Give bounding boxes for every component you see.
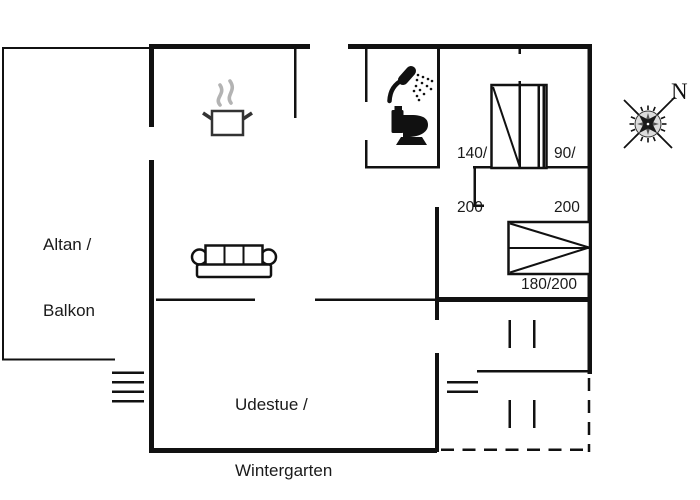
wall-left-upper xyxy=(149,44,154,127)
bathroom-wall-bottom xyxy=(365,166,440,169)
wall-top-right-segment xyxy=(348,44,592,49)
bathroom-wall-left-lower xyxy=(365,140,368,168)
double-bed-icon xyxy=(492,81,547,168)
wall-mid-horizontal xyxy=(435,297,590,302)
shower-icon xyxy=(390,71,434,101)
wall-mid-vertical-lower xyxy=(435,353,439,452)
wall-mid-vertical-upper xyxy=(435,207,439,320)
bathroom-wall-left-upper xyxy=(365,47,368,102)
bed-90-label: 90/ 200 xyxy=(554,109,580,253)
bed-140-label-line1: 140/ xyxy=(457,145,487,163)
terrace xyxy=(441,320,591,452)
floor-plan: N Altan / Balkon Udestue / Wintergarten … xyxy=(0,0,700,500)
balcony-left xyxy=(2,47,4,360)
balcony-top xyxy=(2,47,150,49)
entry-steps-icon xyxy=(112,372,144,403)
kitchen-divider-wall xyxy=(294,47,297,118)
balcony-label-line2: Balkon xyxy=(43,300,95,322)
terrace-divider-line xyxy=(477,370,590,373)
bed-180-label: 180/200 xyxy=(508,276,590,294)
terrace-steps-icon xyxy=(447,381,478,393)
window-tick xyxy=(519,49,522,54)
wintergarden-label-line2: Wintergarten xyxy=(235,460,332,482)
bed-140-label-line2: 200 xyxy=(457,199,487,217)
compass-north-label: N xyxy=(671,79,688,104)
compass-rose-icon xyxy=(624,97,675,148)
sofa-icon xyxy=(192,246,276,278)
cooking-pot-icon xyxy=(203,81,252,135)
shower-spray-dots xyxy=(413,74,434,102)
bed-90-label-line1: 90/ xyxy=(554,145,580,163)
terrace-plank-marks xyxy=(509,320,536,428)
wall-top-left-segment xyxy=(149,44,310,49)
balcony-label-line1: Altan / xyxy=(43,234,95,256)
toilet-icon xyxy=(392,106,429,145)
floor-plan-drawing: N xyxy=(0,0,700,500)
bed-90-label-line2: 200 xyxy=(554,199,580,217)
wall-right xyxy=(588,44,593,374)
livingroom-udestue-wall-right xyxy=(315,299,437,302)
bed-140-label: 140/ 200 xyxy=(457,109,487,253)
bathroom-wall-right xyxy=(437,47,440,167)
wintergarden-label: Udestue / Wintergarten xyxy=(235,350,332,500)
wintergarden-label-line1: Udestue / xyxy=(235,394,332,416)
livingroom-udestue-wall-left xyxy=(156,299,255,302)
steam-icon xyxy=(218,81,232,105)
balcony-label: Altan / Balkon xyxy=(43,190,95,366)
wall-left-lower xyxy=(149,160,154,453)
